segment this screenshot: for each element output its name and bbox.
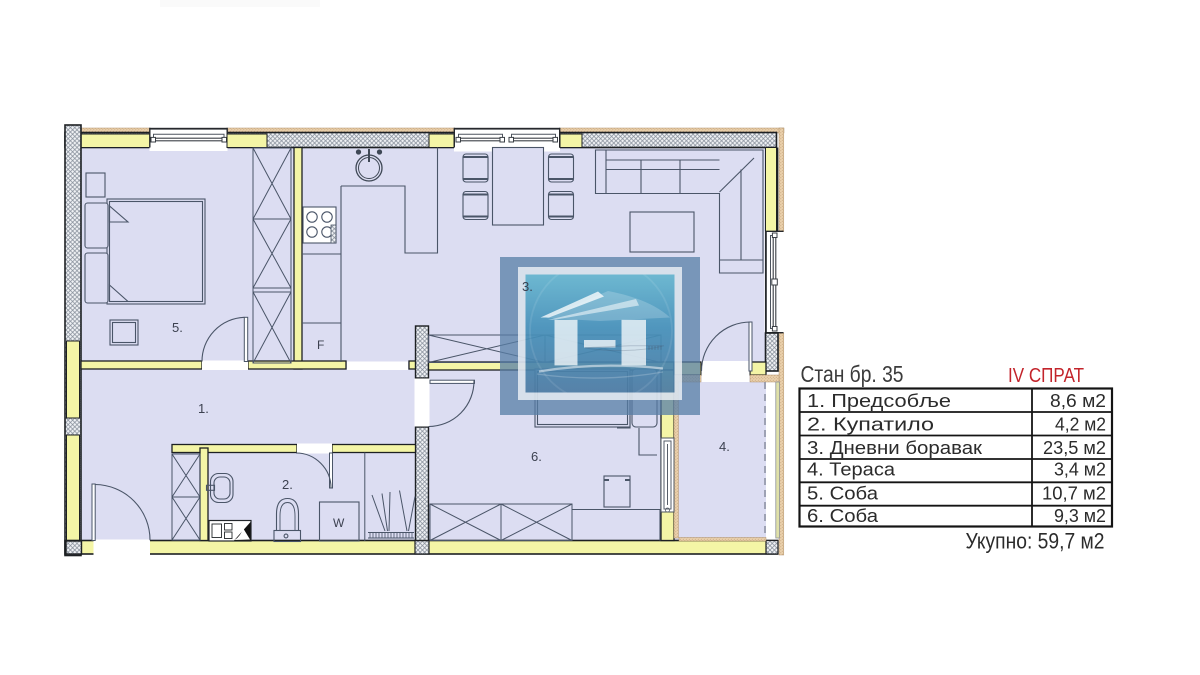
svg-text:8,6 м2: 8,6 м2 (1050, 390, 1106, 411)
svg-text:F: F (317, 338, 324, 352)
svg-text:6. Соба: 6. Соба (807, 505, 879, 526)
svg-text:Стан бр. 35: Стан бр. 35 (801, 361, 904, 387)
svg-text:3,4 м2: 3,4 м2 (1054, 459, 1106, 480)
svg-text:9,3 м2: 9,3 м2 (1054, 505, 1106, 526)
svg-text:4. Тераса: 4. Тераса (807, 459, 896, 480)
svg-text:5. Соба: 5. Соба (807, 483, 879, 504)
svg-text:6.: 6. (531, 449, 542, 464)
svg-text:IV СПРАТ: IV СПРАТ (1008, 364, 1084, 387)
svg-text:4,2 м2: 4,2 м2 (1055, 414, 1106, 435)
svg-text:2. Купатило: 2. Купатило (807, 414, 934, 435)
svg-text:23,5 м2: 23,5 м2 (1043, 437, 1106, 458)
svg-text:3.: 3. (522, 279, 533, 294)
svg-text:3. Дневни боравак: 3. Дневни боравак (807, 437, 983, 458)
svg-text:5.: 5. (172, 320, 183, 335)
svg-text:1. Предсобље: 1. Предсобље (807, 390, 951, 411)
svg-text:W: W (333, 516, 345, 530)
svg-text:10,7 м2: 10,7 м2 (1042, 483, 1106, 504)
svg-text:1.: 1. (198, 401, 209, 416)
svg-text:Укупно: 59,7 м2: Укупно: 59,7 м2 (966, 529, 1105, 554)
svg-text:4.: 4. (719, 439, 730, 454)
svg-text:2.: 2. (282, 477, 293, 492)
